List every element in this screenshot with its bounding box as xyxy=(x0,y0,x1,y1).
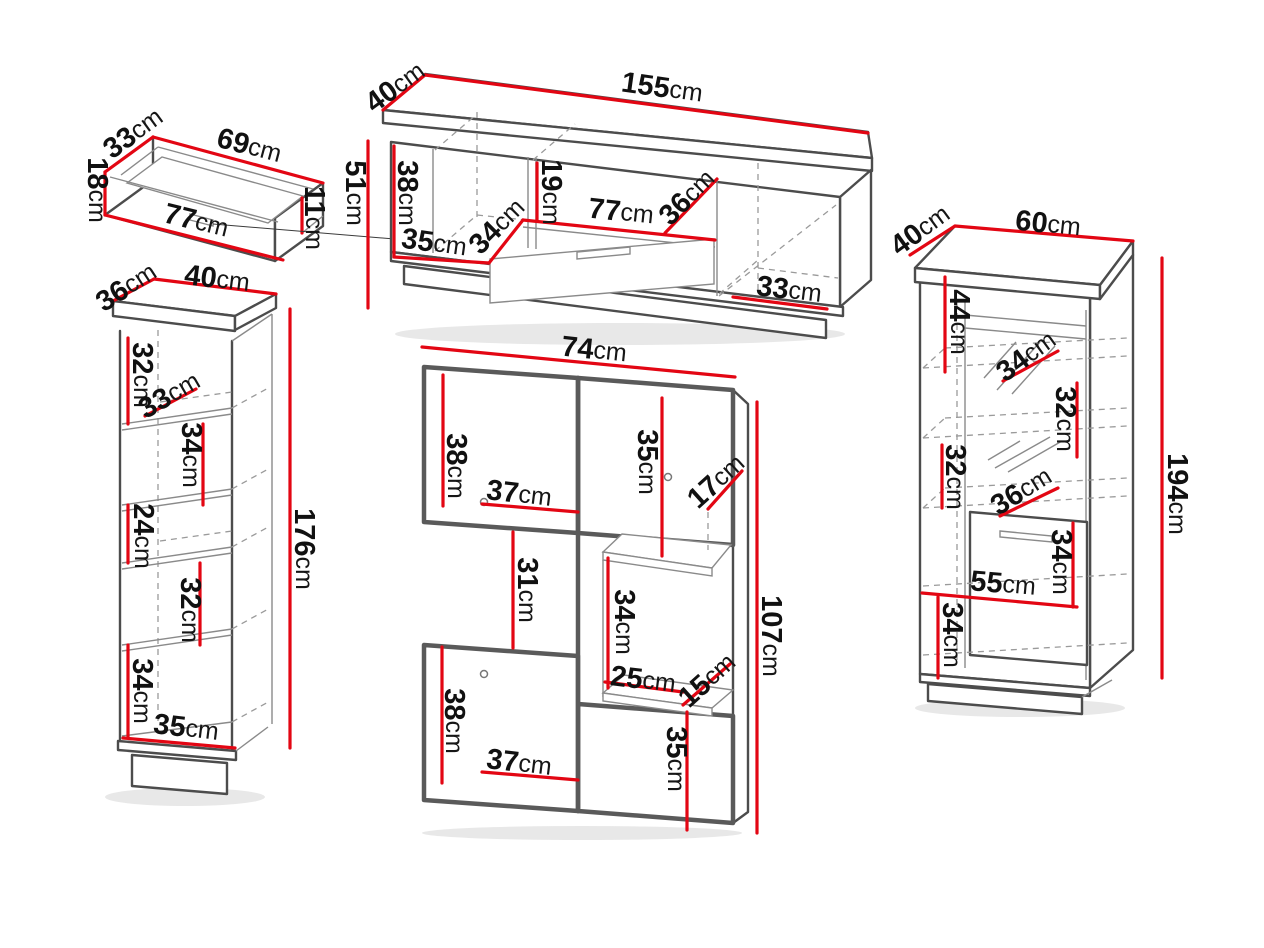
furniture-dimension-diagram: 33cm 69cm 18cm 77cm 11cm 40cm 155cm 51cm… xyxy=(0,0,1264,948)
dim-bookcase-height-label: 176cm xyxy=(288,508,320,590)
dim-shelf-side-height-label: 11cm xyxy=(298,186,330,250)
dim-bookcase-sec3-label: 24cm xyxy=(127,503,159,569)
diagram-canvas: 33cm 69cm 18cm 77cm 11cm 40cm 155cm 51cm… xyxy=(0,0,1264,948)
dim-cabinet-glass2-label: 32cm xyxy=(939,444,971,510)
dim-cabinet-glass1-label: 32cm xyxy=(1049,386,1081,452)
dim-unit-height-label: 107cm xyxy=(755,595,787,677)
dim-tv-niche-height-label: 19cm xyxy=(535,159,567,225)
dim-cabinet-height-label: 194cm xyxy=(1161,453,1193,535)
dim-unit-right-top-height-label: 35cm xyxy=(631,429,663,495)
dim-shelf-height-label: 18cm xyxy=(81,157,113,223)
dim-tv-height-label: 51cm xyxy=(339,160,371,226)
dim-bookcase-sec4-label: 32cm xyxy=(174,577,206,643)
dim-unit-niche-height-label: 34cm xyxy=(608,589,640,655)
dim-bookcase-sec2-label: 34cm xyxy=(175,422,207,488)
dim-unit-gap-height-label: 31cm xyxy=(511,557,543,623)
dim-cabinet-top-section-label: 44cm xyxy=(943,289,975,355)
dim-cabinet-door-height-label: 34cm xyxy=(1045,529,1077,595)
dim-cabinet-width-label: 60cm xyxy=(1014,204,1083,243)
dim-cabinet-base-height-label: 34cm xyxy=(936,602,968,668)
dim-unit-bottom-door-height-label: 38cm xyxy=(438,688,470,754)
dim-unit-right-bottom-height-label: 35cm xyxy=(660,726,692,792)
dim-tv-inner-height-label: 38cm xyxy=(391,160,423,226)
dim-unit-top-door-height-label: 38cm xyxy=(440,433,472,499)
dim-bookcase-sec5-label: 34cm xyxy=(126,658,158,724)
